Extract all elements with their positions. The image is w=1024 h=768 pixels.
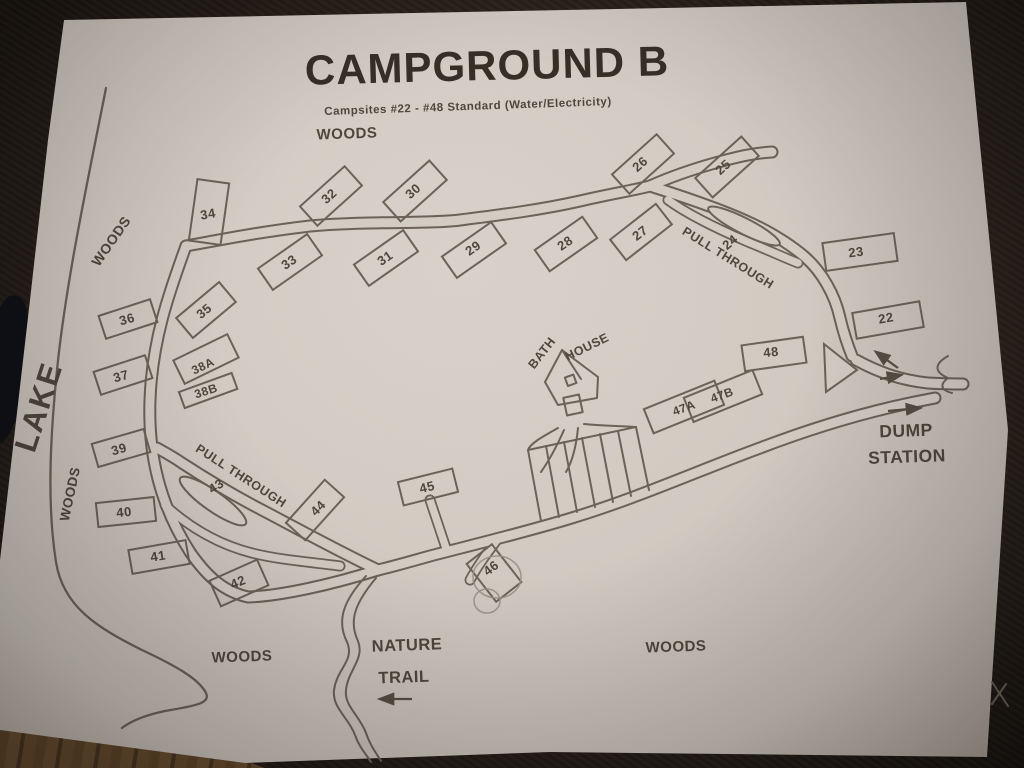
pencil-x-mark	[992, 682, 1008, 706]
site-label-22: 22	[877, 309, 895, 326]
nature-trail-path	[334, 576, 381, 762]
site-label-41: 41	[149, 547, 167, 564]
woods-label-top: WOODS	[316, 124, 377, 143]
site-label-34: 34	[199, 205, 217, 222]
photo-of-campground-map: CAMPGROUND B Campsites #22 - #48 Standar…	[0, 0, 1024, 768]
woods-label-bottom-left: WOODS	[211, 647, 272, 666]
site-label-40: 40	[116, 504, 133, 521]
lake-shoreline	[50, 88, 206, 728]
site-label-48: 48	[763, 344, 780, 361]
nature-trail-label-line1: NATURE	[371, 635, 442, 656]
map-drawing	[0, 0, 1024, 768]
site-label-23: 23	[847, 243, 864, 260]
nature-trail-label-line2: TRAIL	[378, 668, 430, 689]
map-title: CAMPGROUND B	[304, 37, 669, 95]
woods-label-bottom-right: WOODS	[645, 637, 706, 656]
dump-station-label-line1: DUMP	[879, 420, 933, 443]
dump-station-label-line2: STATION	[868, 445, 946, 469]
